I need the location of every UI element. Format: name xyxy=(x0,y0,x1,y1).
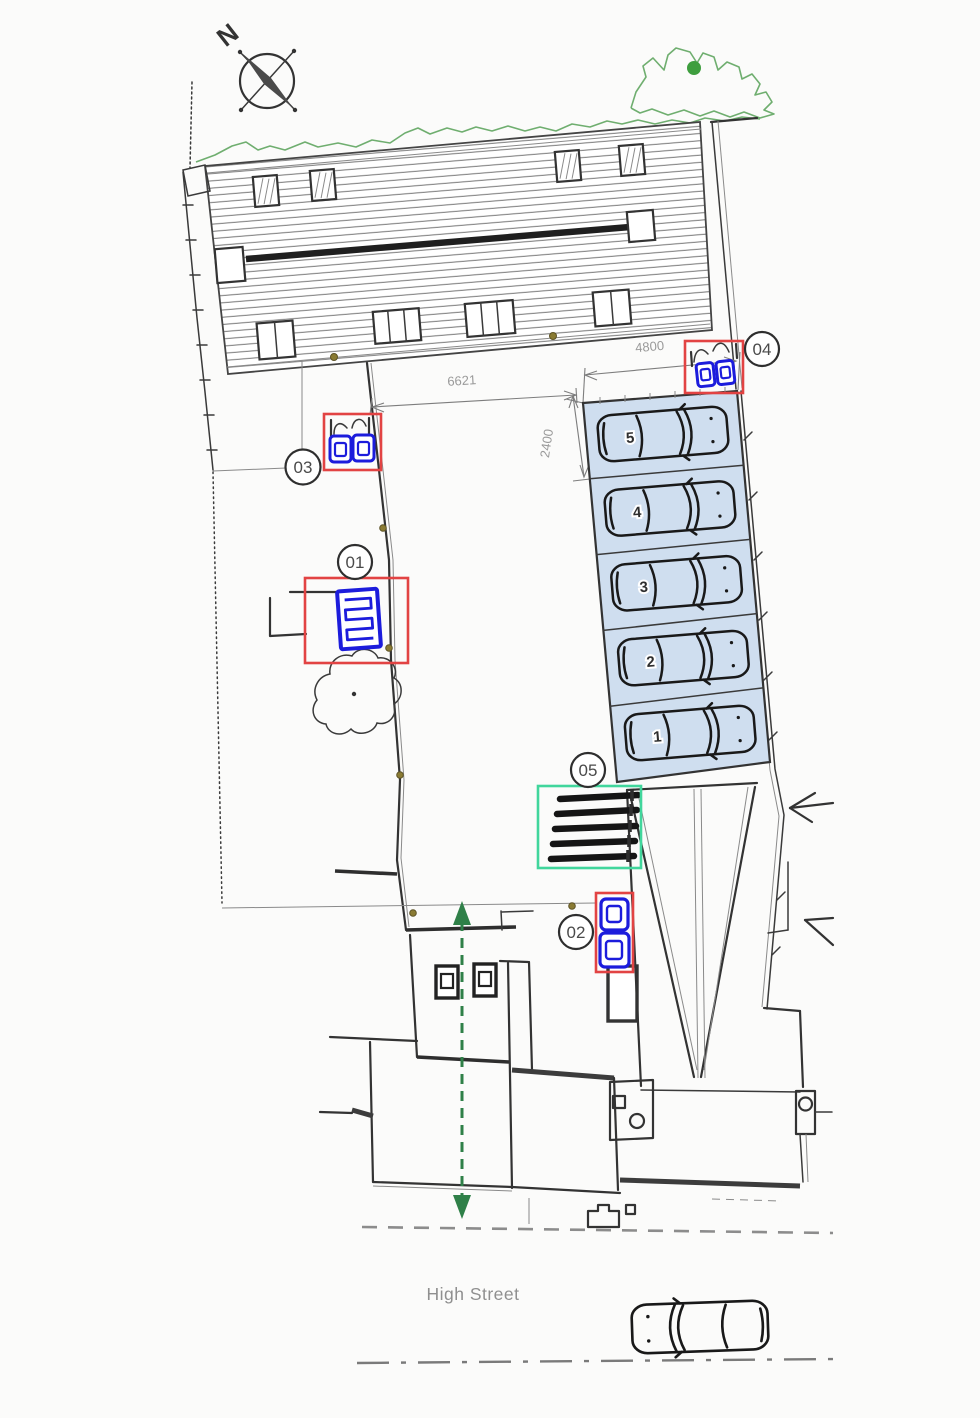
survey-peg xyxy=(397,772,404,779)
marker-03: 03 xyxy=(286,414,382,485)
car-icon xyxy=(631,1295,769,1359)
marker-01-label: 01 xyxy=(346,553,365,572)
chimney xyxy=(215,247,246,283)
bay-number: 3 xyxy=(639,579,649,597)
tree-dot xyxy=(687,61,701,75)
marker-03-label: 03 xyxy=(294,458,313,477)
north-label: N xyxy=(211,17,244,52)
bay-number: 1 xyxy=(653,728,663,746)
site-plan-svg: N xyxy=(0,0,980,1418)
roof-window xyxy=(465,300,516,337)
roof-window xyxy=(373,308,421,344)
chimney xyxy=(627,210,655,242)
roof-window xyxy=(593,290,632,327)
dimension-label: 2400 xyxy=(537,428,556,459)
rooflight-box xyxy=(436,966,458,998)
road-centerline xyxy=(357,1359,836,1363)
rooflight xyxy=(619,144,645,176)
bay-number: 2 xyxy=(646,653,656,671)
survey-peg xyxy=(386,645,393,652)
rooflight xyxy=(253,175,279,207)
cycle-stands-icon xyxy=(551,789,638,862)
dimension-6621: 6621 xyxy=(370,372,577,415)
dimension-label: 6621 xyxy=(447,372,477,389)
marker-02-label: 02 xyxy=(567,923,586,942)
store-box xyxy=(608,966,637,1021)
lower-buildings xyxy=(222,783,832,1227)
survey-peg xyxy=(331,354,338,361)
dimension-label: 4800 xyxy=(635,338,665,355)
porch xyxy=(796,1091,832,1182)
waste-bins-icon xyxy=(696,360,735,387)
marker-04: 04 xyxy=(685,332,779,393)
gate-symbol xyxy=(790,793,833,822)
dimension-2400: 2400 xyxy=(537,396,590,481)
road: High Street xyxy=(357,1227,836,1363)
waste-bins-icon xyxy=(600,899,629,967)
rooflight-box xyxy=(474,964,496,996)
compass-rose: N xyxy=(211,17,297,112)
parking-bays: 5 4 3 2 1 xyxy=(583,387,770,782)
main-building xyxy=(183,122,712,374)
heat-pump-unit-icon xyxy=(337,589,381,650)
survey-peg xyxy=(410,910,417,917)
bay-number: 5 xyxy=(625,429,635,447)
marker-04-label: 04 xyxy=(753,340,772,359)
roof-window xyxy=(257,321,296,360)
tree-canopy-top-right xyxy=(631,48,774,118)
site-plan-page: N xyxy=(0,0,980,1418)
gate-swing-icon xyxy=(331,418,369,436)
street-car xyxy=(631,1295,769,1359)
survey-peg xyxy=(569,903,576,910)
street-structure xyxy=(588,1205,619,1227)
waste-bins-icon xyxy=(330,435,374,462)
marker-05-label: 05 xyxy=(579,761,598,780)
street-structure xyxy=(626,1205,635,1214)
rooflight xyxy=(310,169,336,201)
gate-symbol xyxy=(768,862,833,945)
rooflight xyxy=(555,150,581,182)
marker-01: 01 xyxy=(305,545,408,663)
high-street-label: High Street xyxy=(426,1284,519,1304)
survey-peg xyxy=(380,525,387,532)
survey-peg xyxy=(550,333,557,340)
arrow-down-head xyxy=(453,1195,471,1219)
